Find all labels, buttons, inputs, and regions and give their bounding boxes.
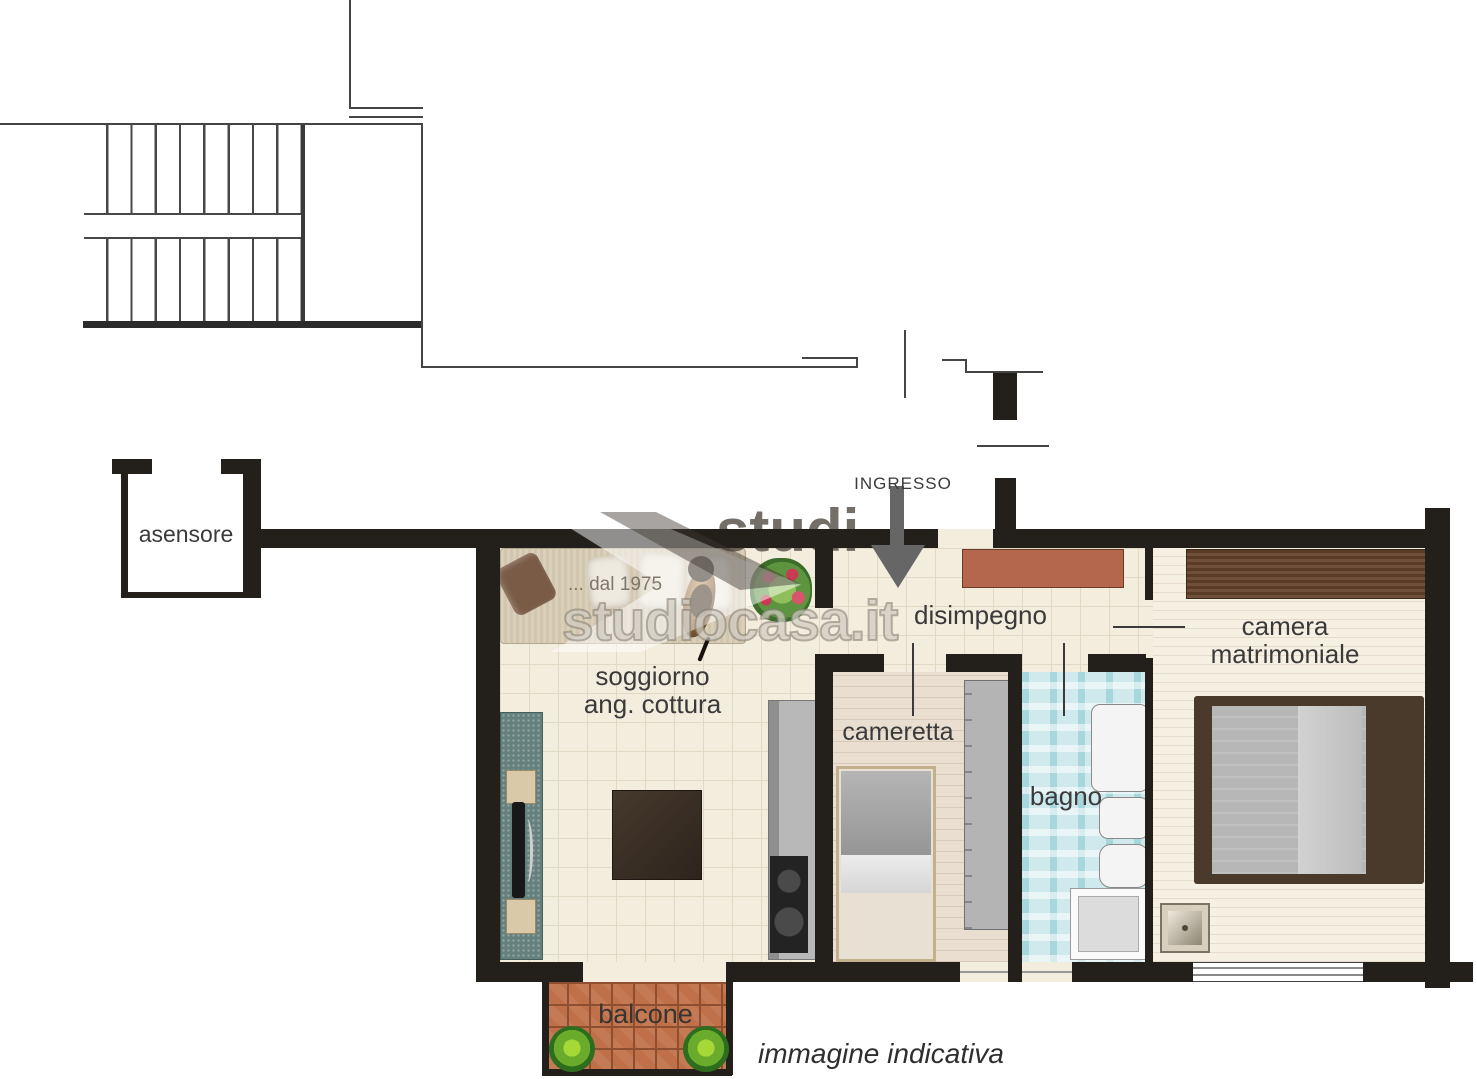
boundary-line-h2 (349, 116, 423, 118)
elevator-label: asensore (116, 520, 256, 548)
window-bath-left (960, 962, 1008, 982)
entrance-label: INGRESSO (838, 470, 968, 498)
bottom-wall-3 (1008, 962, 1022, 982)
boundary-line-right-vertical (421, 125, 423, 368)
floor-plan: asensore (0, 0, 1477, 1079)
living-room-label-line1: soggiorno (555, 662, 750, 690)
shower-basin (1078, 896, 1139, 952)
bathroom-label: bagno (1026, 782, 1106, 810)
balcony-label: balcone (598, 1000, 693, 1028)
child-bedroom-label: cameretta (838, 718, 958, 746)
wall-child-top-right (946, 654, 1010, 672)
kitchen-cooktop (770, 856, 808, 953)
wall-master-upper (1145, 548, 1153, 600)
watermark-brand: studiocasa.it (562, 588, 897, 654)
master-wardrobe (1186, 549, 1429, 599)
balcony-plant-left (549, 1026, 595, 1072)
balcony-wall-left (542, 982, 549, 1075)
balcony-plant-right (683, 1026, 729, 1072)
balcony-wall-right (726, 982, 733, 1075)
wall-child-left (815, 654, 833, 962)
bathtub (1091, 704, 1149, 792)
hall-wall (261, 529, 476, 548)
entry-step-line1 (942, 359, 967, 361)
master-bedroom-label-line1: camera (1195, 612, 1375, 640)
floor-lamp-center (1182, 925, 1188, 931)
child-bed-sheet (841, 855, 931, 893)
living-room-label: soggiorno ang. cottura (555, 662, 750, 718)
bidet (1099, 844, 1149, 888)
boundary-line-top (0, 123, 423, 125)
window-master-bedroom (1193, 962, 1363, 982)
sideboard-handle (522, 820, 533, 882)
left-wall (476, 529, 500, 982)
bottom-wall-1 (476, 962, 583, 982)
sink (1099, 797, 1149, 839)
balcony-door-opening (583, 962, 726, 982)
wall-child-bath-divider (1008, 654, 1022, 962)
hallway-cabinet (962, 549, 1124, 588)
corridor-line-short (802, 357, 858, 359)
wall-bath-master-divider (1145, 658, 1153, 962)
entrance-arrow-head (871, 545, 925, 588)
child-wardrobe (964, 680, 1010, 930)
master-bedroom-door (1113, 626, 1185, 628)
elevator-wall-bottom (121, 592, 259, 598)
bottom-wall-4 (1072, 962, 1193, 982)
staircase-landing (84, 213, 302, 239)
entry-pillar-lower (995, 478, 1016, 529)
bottom-wall-5 (1363, 962, 1473, 982)
wall-child-top-left (833, 654, 884, 672)
entry-pillar-upper (993, 373, 1017, 420)
bathroom-door (1063, 643, 1065, 716)
corridor-line-cap (856, 357, 858, 368)
master-bed-sheet-fold (1298, 706, 1362, 874)
entrance-opening (938, 529, 993, 548)
top-wall-right (993, 529, 1450, 548)
right-wall (1425, 508, 1450, 988)
sideboard-box-bottom (506, 899, 536, 934)
master-bedroom-label: camera matrimoniale (1195, 612, 1375, 668)
bottom-wall-2 (726, 962, 960, 982)
dining-table (612, 790, 702, 880)
wall-bath-top-right (1088, 654, 1146, 672)
master-bedroom-label-line2: matrimoniale (1195, 640, 1375, 668)
entry-threshold-line (977, 445, 1049, 447)
staircase-right-wall (301, 125, 305, 322)
window-bath-right (1022, 962, 1072, 982)
boundary-line-vertical-top (349, 0, 351, 109)
landing-line-vertical (904, 330, 906, 398)
child-bedroom-door (912, 643, 914, 716)
disclaimer-note: immagine indicativa (758, 1040, 958, 1068)
sideboard-box-top (506, 770, 536, 804)
boundary-line-h1 (349, 107, 423, 109)
hallway-label: disimpegno (908, 601, 1053, 629)
staircase-bottom-wall (83, 321, 423, 328)
elevator-cap-left (112, 459, 152, 474)
child-bed-blanket (841, 771, 931, 859)
corridor-line-long (421, 366, 858, 368)
living-room-label-line2: ang. cottura (555, 690, 750, 718)
